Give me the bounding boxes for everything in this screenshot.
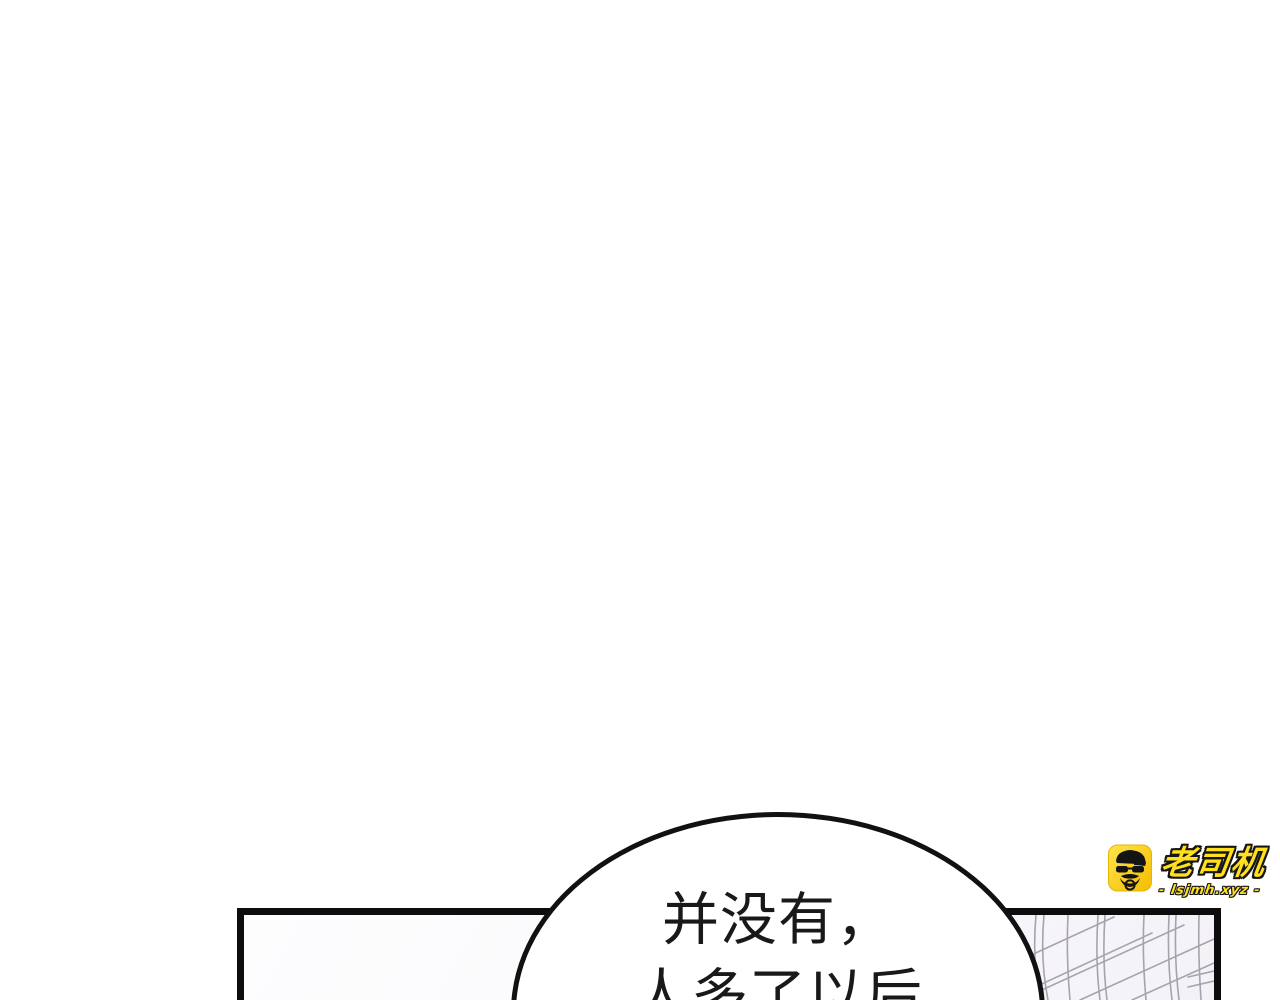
comic-page: 并没有， 人多了以后 老司 — [0, 0, 1280, 1000]
watermark-site-url: - lsjmh.xyz - — [1158, 883, 1262, 898]
driver-face-icon — [1108, 844, 1152, 892]
dialogue-line-1: 并没有， — [511, 882, 1045, 958]
site-watermark: 老司机 - lsjmh.xyz - — [1108, 844, 1265, 898]
dialogue-line-2: 人多了以后 — [511, 958, 1045, 1000]
watermark-site-name: 老司机 — [1158, 844, 1268, 882]
watermark-texts: 老司机 - lsjmh.xyz - — [1156, 844, 1269, 898]
speech-bubble-text: 并没有， 人多了以后 — [511, 882, 1045, 1000]
